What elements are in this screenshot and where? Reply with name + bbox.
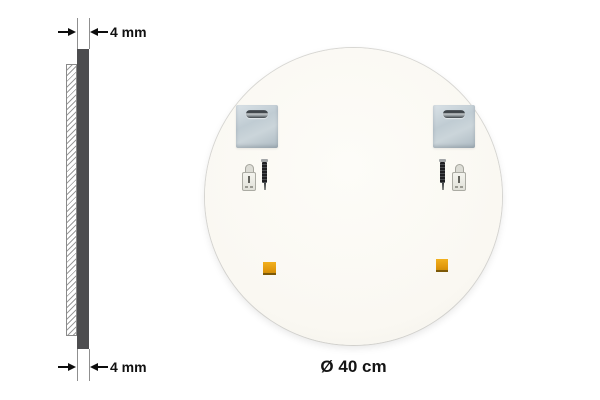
screw-tip xyxy=(264,183,266,190)
extension-line-bottom-left xyxy=(77,349,78,381)
anchor-slot xyxy=(458,176,460,183)
anchor-dot xyxy=(460,186,463,188)
extension-line-top-left xyxy=(77,18,78,49)
hatched-cross-section xyxy=(66,64,77,336)
thickness-label-bottom: 4 mm xyxy=(110,359,147,375)
dimension-arrow-right-icon xyxy=(58,366,68,368)
dimension-arrow-right-icon xyxy=(58,31,68,33)
thickness-label-top: 4 mm xyxy=(110,24,147,40)
mirror-edge-profile-bar xyxy=(77,49,89,349)
keyhole-mounting-plate-right-icon xyxy=(433,105,475,148)
wall-anchor-left-icon xyxy=(242,164,256,192)
anchor-dot xyxy=(245,186,248,188)
adhesive-pad-right-icon xyxy=(436,259,448,272)
screw-tip xyxy=(442,183,444,190)
screw-right-icon xyxy=(439,159,446,190)
anchor-body xyxy=(242,172,256,191)
screw-shaft xyxy=(262,162,267,183)
mirror-back-view xyxy=(205,48,502,345)
screw-shaft xyxy=(440,162,445,183)
anchor-dot xyxy=(250,186,253,188)
keyhole-mounting-plate-left-icon xyxy=(236,105,278,148)
anchor-dot xyxy=(455,186,458,188)
product-dimension-diagram: 4 mm 4 mm xyxy=(0,0,600,400)
anchor-slot xyxy=(248,176,250,183)
screw-left-icon xyxy=(261,159,268,190)
keyhole-slot-icon xyxy=(443,110,465,118)
dimension-arrow-left-icon xyxy=(98,31,108,33)
adhesive-pad-left-icon xyxy=(263,262,276,275)
diameter-label: Ø 40 cm xyxy=(205,357,502,377)
wall-anchor-right-icon xyxy=(452,164,466,192)
anchor-body xyxy=(452,172,466,191)
keyhole-slot-icon xyxy=(246,110,268,118)
dimension-arrow-left-icon xyxy=(98,366,108,368)
